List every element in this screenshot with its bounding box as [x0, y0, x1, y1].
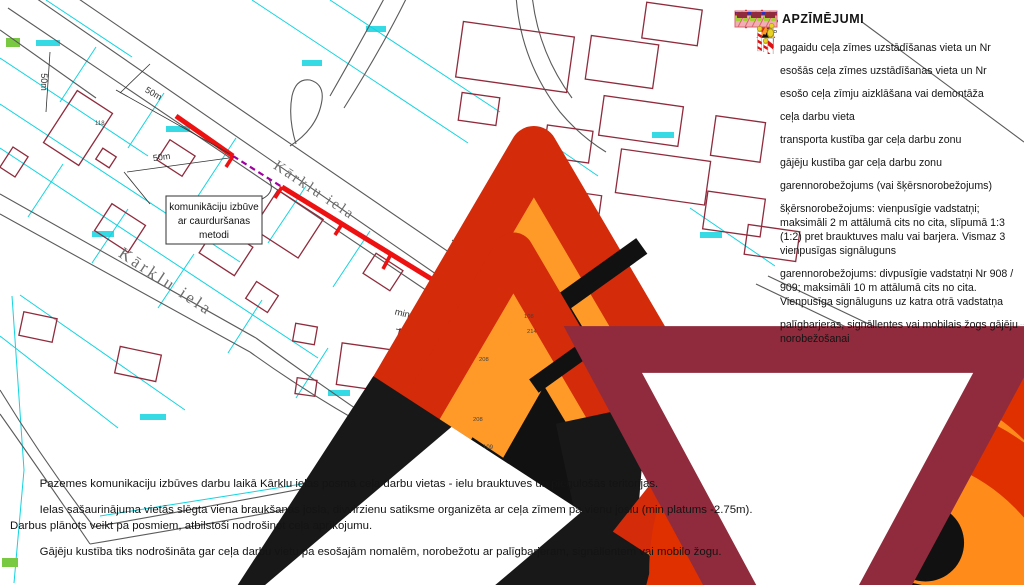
legend-label: transporta kustība gar ceļa darbu zonu — [780, 132, 961, 148]
legend-label: garennorobežojums (vai šķērsnorobežojums… — [780, 178, 992, 194]
callout-box: komunikāciju izbūve ar caurduršanas meto… — [166, 179, 271, 244]
legend-item: gājēju kustība gar ceļa darbu zonu — [734, 155, 1020, 171]
legend-item: garennorobežojums: divpusīgie vadstatņi … — [734, 266, 1020, 310]
callout-line: metodi — [199, 230, 229, 241]
dim-50m-label: 50m — [39, 73, 49, 91]
legend-label: šķērsnorobežojums: vienpusīgie vadstatņi… — [780, 201, 1020, 259]
legend-label: esošo ceļa zīmju aizklāšana vai demontāž… — [780, 86, 984, 102]
legend-label: esošās ceļa zīmes uzstādīšanas vieta un … — [780, 63, 987, 79]
legend-panel: APZĪMĒJUMI 118 pagaidu ceļa zīmes uzstād… — [734, 8, 1020, 354]
dim-50m-label: 50m — [143, 85, 163, 102]
legend-item: palīgbarjeras, signāllentes vai mobilais… — [734, 317, 1020, 347]
legend-item: transporta kustība gar ceļa darbu zonu — [734, 132, 1020, 148]
legend-item: garennorobežojums (vai šķērsnorobežojums… — [734, 178, 1020, 194]
legend-label: ceļa darbu vieta — [780, 109, 855, 125]
callout-line: ar caurduršanas — [178, 216, 250, 227]
note-paragraph: Gājēju kustība tiks nodrošināta gar ceļa… — [10, 545, 755, 560]
legend-label: pagaidu ceļa zīmes uzstādīšanas vieta un… — [780, 40, 991, 56]
legend-item: esošās ceļa zīmes uzstādīšanas vieta un … — [734, 63, 1020, 79]
sign-number: 208 — [479, 357, 489, 363]
legend-item: esošo ceļa zīmju aizklāšana vai demontāž… — [734, 86, 1020, 102]
sign-number: 118 — [95, 121, 105, 127]
sign-number: 208 — [473, 417, 483, 423]
legend-item: šķērsnorobežojums: vienpusīgie vadstatņi… — [734, 201, 1020, 259]
sign-number: 108 — [524, 314, 534, 320]
notes: Pazemes komunikaciju izbūves darbu laikā… — [10, 477, 755, 572]
callout-line: komunikāciju izbūve — [169, 202, 259, 213]
legend-item: ceļa darbu vieta — [734, 109, 1020, 125]
legend-label: garennorobežojums: divpusīgie vadstatņi … — [780, 266, 1020, 310]
legend-label: palīgbarjeras, signāllentes vai mobilais… — [780, 317, 1020, 347]
legend-label: gājēju kustība gar ceļa darbu zonu — [780, 155, 942, 171]
sign-number: 214 — [527, 329, 537, 335]
note-paragraph: Ielas sašaurinājuma vietās slēgta viena … — [10, 503, 755, 534]
note-paragraph: Pazemes komunikaciju izbūves darbu laikā… — [10, 477, 755, 492]
legend-title: APZĪMĒJUMI — [782, 12, 1020, 26]
traffic-scheme-canvas: 50m 50m 50m 40m 40m min 5.5 m min 2.75 m… — [0, 0, 1024, 585]
dim-50m-label: 50m — [152, 151, 171, 163]
